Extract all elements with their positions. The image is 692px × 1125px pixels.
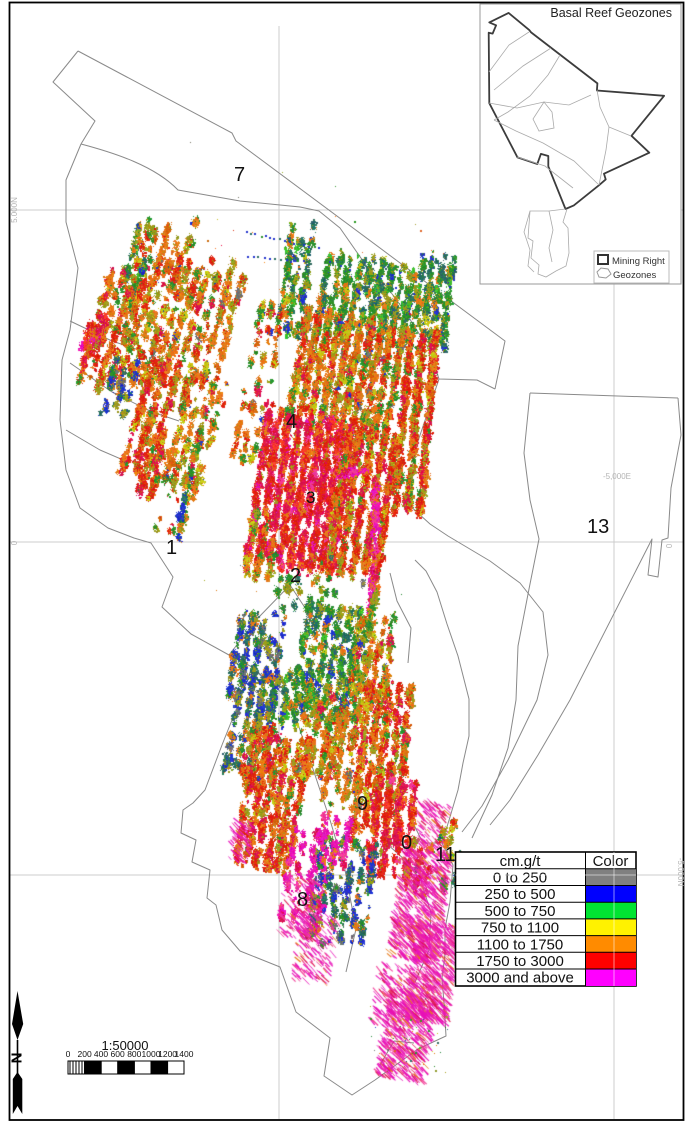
svg-text:1: 1: [166, 537, 177, 559]
svg-text:4: 4: [286, 411, 297, 433]
svg-text:cm.g/t: cm.g/t: [500, 853, 542, 870]
svg-text:3000 and above: 3000 and above: [466, 970, 574, 987]
svg-text:250 to 500: 250 to 500: [485, 886, 556, 903]
svg-text:-5.000N: -5.000N: [676, 858, 685, 887]
svg-text:1750 to 3000: 1750 to 3000: [476, 953, 564, 970]
svg-text:0: 0: [10, 540, 19, 545]
svg-text:8: 8: [297, 889, 308, 911]
svg-text:0: 0: [66, 1049, 71, 1059]
svg-text:1400: 1400: [175, 1049, 194, 1059]
svg-text:-5,000E: -5,000E: [603, 472, 631, 481]
svg-text:800: 800: [127, 1049, 141, 1059]
svg-text:500 to 750: 500 to 750: [485, 903, 556, 920]
svg-text:750 to 1100: 750 to 1100: [481, 920, 559, 937]
svg-text:9: 9: [357, 793, 368, 815]
svg-text:N: N: [8, 1053, 25, 1064]
svg-text:13: 13: [587, 516, 609, 538]
svg-text:400: 400: [94, 1049, 108, 1059]
svg-text:0: 0: [664, 544, 673, 549]
svg-text:2: 2: [290, 565, 301, 587]
svg-text:200: 200: [78, 1049, 92, 1059]
svg-text:Basal Reef Geozones: Basal Reef Geozones: [550, 6, 672, 20]
svg-text:Mining Right: Mining Right: [612, 256, 665, 267]
svg-text:Color: Color: [593, 853, 629, 870]
svg-text:0: 0: [401, 832, 412, 854]
svg-text:3: 3: [306, 488, 315, 507]
svg-text:7: 7: [234, 164, 245, 186]
svg-text:Geozones: Geozones: [613, 270, 657, 281]
svg-text:0 to 250: 0 to 250: [493, 870, 547, 887]
svg-text:600: 600: [111, 1049, 125, 1059]
svg-text:5.000N: 5.000N: [10, 197, 19, 223]
svg-text:11: 11: [435, 844, 456, 866]
svg-text:1100 to 1750: 1100 to 1750: [477, 936, 563, 953]
